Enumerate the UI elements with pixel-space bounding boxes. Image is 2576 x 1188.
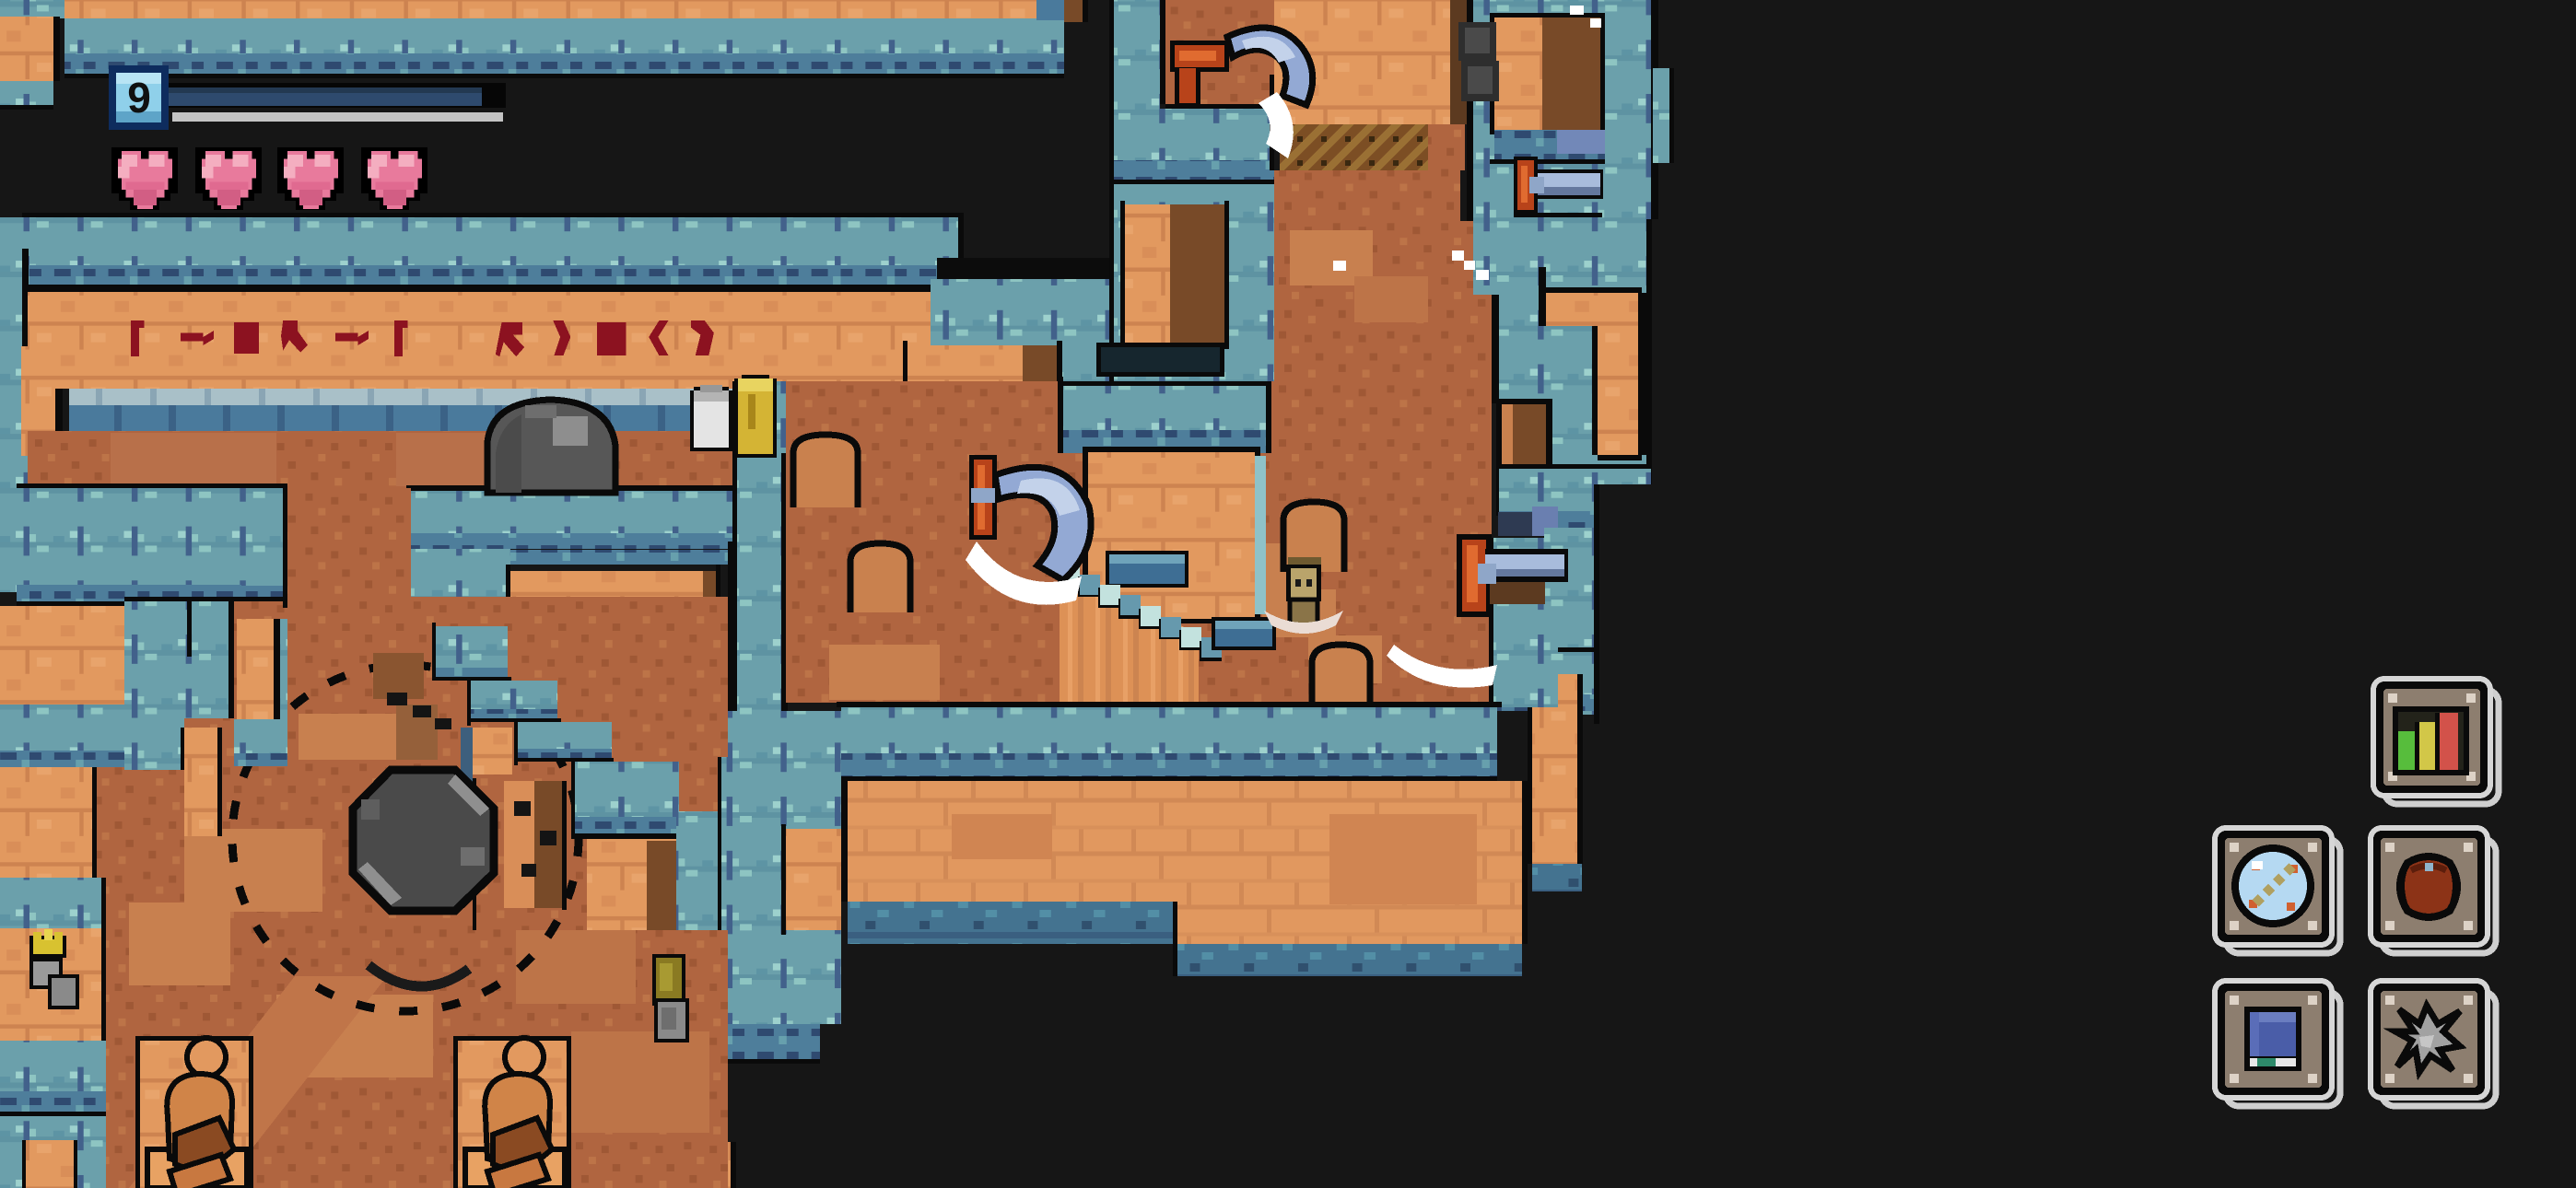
- svg-text:9: 9: [127, 74, 151, 122]
